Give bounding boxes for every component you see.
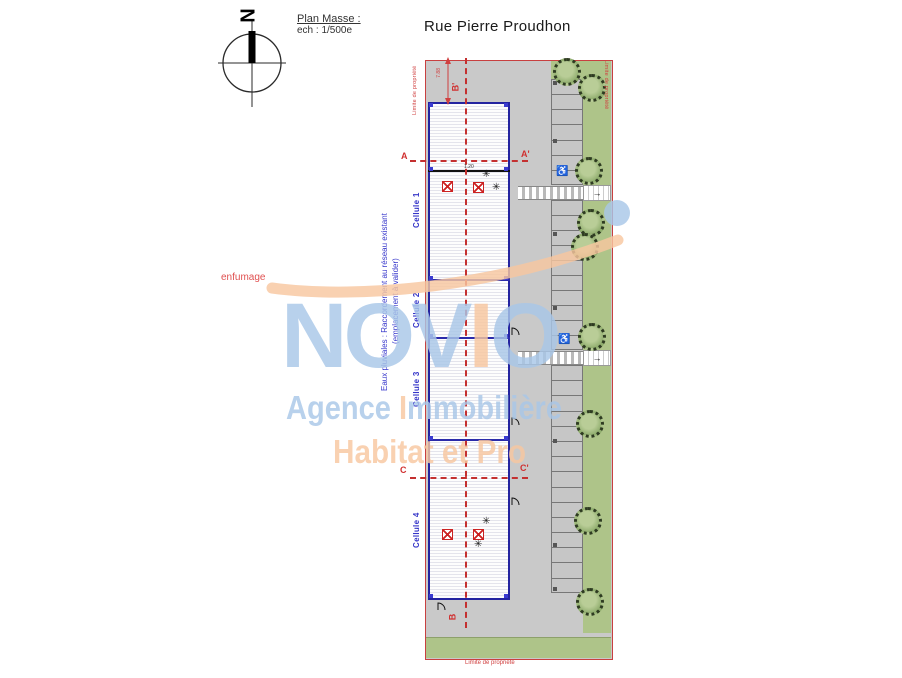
section-label-c: C [400,465,407,475]
tree [576,410,604,438]
section-line-b [465,58,467,628]
corner-nub [429,594,433,598]
parking-row [551,365,583,593]
watermark-brand-letter: N [281,285,343,387]
parking-stall [552,563,582,578]
property-limit-right-label: Limite de propriété [603,60,609,116]
section-line-a [410,160,528,162]
parking-stall [552,396,582,411]
cell-divider [428,170,510,172]
corner-nub [504,103,508,107]
green-band-bottom [426,637,611,658]
corner-nub [429,103,433,107]
divider-nub [504,276,508,280]
compass-icon [212,10,292,110]
property-limit-bottom-label: Limite de propriété [465,660,515,666]
door-icon [510,496,520,506]
divider-nub [429,436,433,440]
section-label-a: A [401,151,408,161]
cell-label: Cellule 4 [412,506,421,548]
dimension-line-788 [441,57,455,105]
tree [553,58,581,86]
zebra-crossing [518,351,583,365]
handicap-icon: ♿ [556,166,568,177]
roof-hatch-symbol [442,529,453,540]
stall-number-marker [553,587,557,591]
door-icon [510,326,520,336]
parking-stall [552,276,582,291]
stall-number-marker [553,543,557,547]
smoke-extraction-note: enfumage [221,272,265,283]
section-label-b: B [447,614,457,621]
compass: N [212,10,292,110]
title-block: Plan Masse : ech : 1/500e [297,13,361,36]
tree [575,157,603,185]
parking-stall [552,548,582,563]
parking-stall [552,457,582,472]
parking-stall [552,366,582,381]
roof-hatch-symbol [473,182,484,193]
parking-stall [552,472,582,487]
cell-label: Cellule 2 [412,286,421,328]
parking-stall [552,291,582,306]
section-label-c-prime: C' [520,463,529,473]
dimension-788-value: 7.88 [436,68,442,78]
tree [578,74,606,102]
street-name: Rue Pierre Proudhon [424,18,571,35]
cell-divider [428,337,510,339]
zebra-crossing [518,186,583,200]
watermark-brand-letter: O [343,285,411,387]
section-line-c [410,477,528,479]
divider-nub [429,167,433,171]
cell-label: Cellule 1 [412,186,421,228]
divider-nub [504,436,508,440]
north-letter: N [238,8,261,22]
parking-stall [552,442,582,457]
crossing-path: → [583,185,611,201]
watermark-agency-part: Agence [286,389,399,426]
tree [578,323,606,351]
corner-nub [504,594,508,598]
stall-number-marker [553,139,557,143]
watermark-agency-part: I [399,389,407,426]
smoke-vent-symbol: ✳ [474,540,482,550]
handicap-icon: ♿ [558,334,570,345]
tree [574,507,602,535]
parking-stall [552,201,582,216]
parking-stall [552,488,582,503]
smoke-vent-symbol: ✳ [482,517,490,527]
stall-number-marker [553,232,557,236]
parking-stall [552,261,582,276]
divider-nub [504,334,508,338]
property-limit-left-label: Limite de propriété [412,57,418,115]
door-icon [436,601,446,611]
site-plan-page: N Plan Masse : ech : 1/500e Rue Pierre P… [0,0,902,678]
divider-nub [429,276,433,280]
parking-stall [552,381,582,396]
rainwater-note-line2: (emplacement à valider) [391,232,400,344]
smoke-vent-symbol: ✳ [492,183,500,193]
skylight-dimension: 1.20 [464,164,474,170]
divider-nub [504,167,508,171]
rainwater-note-line1: Eaux pluviales : Raccordement au réseau … [380,185,389,391]
tree [576,588,604,616]
stall-number-marker [553,306,557,310]
cell-divider [428,279,510,281]
door-icon [510,416,520,426]
smoke-vent-symbol: ✳ [482,170,490,180]
cell-label: Cellule 3 [412,365,421,407]
section-label-a-prime: A' [521,149,530,159]
roof-hatch-symbol [442,181,453,192]
building [428,102,510,600]
cell-divider [428,439,510,441]
stall-number-marker [553,439,557,443]
parking-stall [552,95,582,110]
tree [571,233,599,261]
plan-title: Plan Masse : [297,13,361,25]
crossing-path: → [583,350,611,366]
parking-stall [552,110,582,125]
divider-nub [429,334,433,338]
plan-scale: ech : 1/500e [297,25,361,36]
